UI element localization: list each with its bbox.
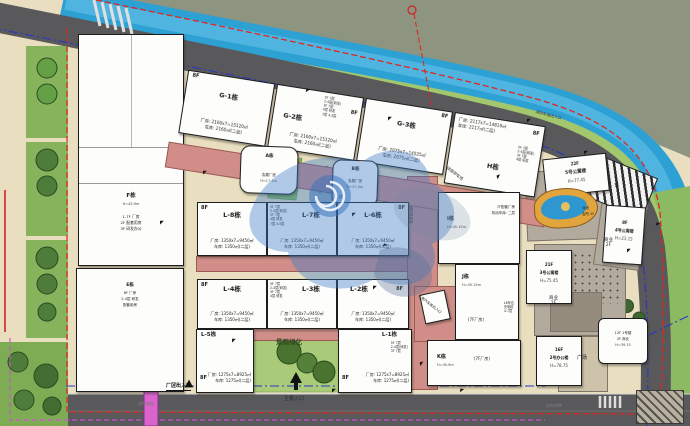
podium-strip-1 bbox=[196, 256, 408, 272]
shrub-marker-icon: ◤ bbox=[584, 150, 588, 156]
area-line: 车库: 1275㎡(二层) bbox=[373, 379, 409, 384]
west-green-2 bbox=[26, 142, 68, 236]
floors-tag: 8F bbox=[532, 131, 540, 138]
floors-tag: 8F bbox=[350, 111, 358, 118]
shrub-marker-icon: ◤ bbox=[527, 118, 531, 124]
building-b: B栋 会展厂房 H=17.3m 2F bbox=[331, 159, 379, 207]
landscape-label: 景观绿化 bbox=[276, 339, 302, 346]
building-f-note: 3F 研发办公 bbox=[79, 227, 183, 231]
building-e-name: E栋 bbox=[77, 283, 183, 288]
building-e-note: 配套用房 bbox=[77, 303, 183, 307]
floors-tag: 8F bbox=[200, 376, 207, 382]
main-entrance-arrow-icon bbox=[290, 372, 302, 383]
west-green-3 bbox=[26, 240, 68, 338]
area-line: 车库: 1350㎡(二层) bbox=[198, 318, 266, 323]
building-l5: L-5栋 8F 厂房: 1275x7=8925㎡ 车库: 1275㎡(二层) bbox=[196, 329, 254, 393]
building-k: K栋 H=45.9m (7F厂房) bbox=[427, 340, 521, 386]
apartment-4-tag: 1F bbox=[614, 184, 619, 189]
micro-notes: 5F 7层 2-4层(研发) 3F 7层 4层 研发 7层 4.5层 bbox=[322, 95, 342, 118]
building-b-height: H=17.3m bbox=[333, 184, 377, 190]
building-k-tag: (7F厂房) bbox=[474, 357, 490, 362]
main-entrance-arrow-icon bbox=[294, 383, 298, 390]
building-1: 12F 1号楼 2F 商业 H=39.15 bbox=[598, 318, 648, 364]
gate-marker bbox=[144, 388, 158, 426]
floors-tag: 8F bbox=[398, 206, 405, 212]
crosswalk bbox=[600, 396, 620, 408]
building-b-use: 会展厂房 bbox=[333, 178, 377, 184]
building-h: 厂房: 2117x7=14819㎡ 车库: 2117㎡(二层) 8F 5F 7层… bbox=[444, 112, 546, 198]
plaza-label: 广场 bbox=[577, 356, 587, 362]
floors-tag: 8F bbox=[201, 206, 208, 212]
building-j-tag: (7F厂房) bbox=[468, 318, 484, 323]
micro-notes: 5F 7层 2-4层(研发) 3F 7层 4层 研发 bbox=[516, 145, 536, 164]
west-green-1 bbox=[26, 46, 68, 138]
shrub-marker-icon: ◤ bbox=[352, 212, 356, 218]
building-b-name: B栋 bbox=[333, 166, 377, 173]
shrub-marker-icon: ◤ bbox=[388, 116, 392, 122]
area-line: 车库: 1350㎡(二层) bbox=[338, 318, 408, 323]
bridge-stripes bbox=[94, 0, 132, 34]
signal-marker bbox=[408, 6, 416, 14]
building-g1: 8F G-1栋 厂房: 2160x7=15120㎡ 车库: 2160㎡(二层) bbox=[178, 70, 275, 147]
micro-notes: 5F 7层 2-4层(研发) 3F 7层 bbox=[391, 341, 408, 353]
area-line: 车库: 1275㎡(二层) bbox=[215, 379, 251, 384]
shrub-marker-icon: ◤ bbox=[655, 222, 661, 229]
building-f-note: 2F 配套用房 bbox=[79, 221, 183, 225]
micro-notes: L6车位 充电桩 4-7层 bbox=[504, 301, 514, 313]
south-road bbox=[0, 394, 690, 426]
building-i-note: 机动车库: 二层 bbox=[492, 211, 515, 215]
building-f-note: 1-7F 厂房 bbox=[79, 215, 183, 219]
building-a-height: H=17.3m bbox=[241, 178, 297, 184]
shrub-marker-icon: ◤ bbox=[373, 285, 377, 291]
shrub-marker-icon: ◤ bbox=[460, 388, 465, 395]
floors-tag: 8F bbox=[441, 114, 449, 121]
office-2: 16F 2号办公楼 H=78.75 bbox=[536, 336, 582, 386]
club-label: 会所 2F bbox=[582, 212, 594, 216]
shrub-marker-icon: ◤ bbox=[627, 248, 631, 254]
building-g1-name: G-1栋 bbox=[185, 87, 271, 108]
building-a: A栋 会展厂房 H=17.3m bbox=[239, 145, 299, 195]
building-j: J栋 H=45.15m L6车位 充电桩 4-7层 (7F厂房) bbox=[455, 264, 519, 340]
apartment-4: 8F 4号公寓楼 H=23.15 bbox=[602, 205, 646, 266]
building-a-name: A栋 bbox=[241, 153, 297, 160]
building-l4: 8F L-4栋 厂房: 1350x7=9450㎡ 车库: 1350㎡(二层) bbox=[197, 279, 267, 329]
building-g3-name: G-3栋 bbox=[363, 115, 449, 136]
building-l6: L-6栋 8F 厂房: 1350x7=9450㎡ 车库: 1350㎡(二层) bbox=[337, 202, 409, 256]
shrub-marker-icon: ◤ bbox=[160, 220, 164, 226]
building-e-note: 8F 厂房 bbox=[77, 291, 183, 295]
area-line: 车库: 1350㎡(二层) bbox=[198, 245, 266, 250]
planned-road-label: 规划道路 bbox=[546, 404, 562, 409]
building-e-note: 2-4层 研发 bbox=[77, 297, 183, 301]
building-i: I栋 H=45.15m 7F配套厂房 机动车库: 二层 bbox=[438, 192, 520, 264]
planned-road-label: 规划道路 bbox=[138, 402, 154, 407]
site-plan: F栋 H=45.9m 1-7F 厂房 2F 配套用房 3F 研发办公 E栋 8F… bbox=[0, 0, 690, 426]
area-line: 车库: 1350㎡(二层) bbox=[338, 245, 408, 250]
building-g2-name: G-2栋 bbox=[283, 112, 303, 122]
shrub-marker-icon: ◤ bbox=[203, 170, 207, 176]
building-i-note: 7F配套厂房 bbox=[497, 205, 515, 209]
micro-notes: 5F 7层 2-4层(研发) 3F 7层 4层 研发 7层 4.5层 bbox=[270, 205, 287, 226]
building-b-floor-tag: 2F bbox=[338, 196, 343, 201]
shrub-marker-icon: ◤ bbox=[332, 388, 336, 394]
area-line: 车库: 1350㎡(二层) bbox=[268, 318, 336, 323]
micro-notes: 5F 7层 2-4层(研发) 3F 7层 4层 研发 bbox=[270, 282, 287, 299]
shrub-marker-icon: ◤ bbox=[232, 338, 236, 344]
building-a-use: 会展厂房 bbox=[241, 172, 297, 178]
floors-tag: 8F bbox=[342, 376, 349, 382]
southwest-green bbox=[0, 342, 68, 426]
building-e: E栋 8F 厂房 2-4层 研发 配套用房 2F bbox=[76, 268, 184, 392]
building-l3: 5F 7层 2-4层(研发) 3F 7层 4层 研发 L-3栋 厂房: 1350… bbox=[267, 279, 337, 329]
main-gate-label: 主要入口 bbox=[284, 397, 304, 403]
factory-entrance-arrow-icon bbox=[185, 380, 193, 388]
building-l8: 8F L-8栋 厂房: 1350x7=9450㎡ 车库: 1350㎡(二层) bbox=[197, 202, 267, 256]
building-l7: 5F 7层 2-4层(研发) 3F 7层 4层 研发 7层 4.5层 L-7栋 … bbox=[267, 202, 337, 256]
retail-label: 商业 2F bbox=[604, 238, 613, 248]
pool-label: 泳池 bbox=[582, 206, 589, 210]
fire-access-label: 消防登高面 bbox=[409, 206, 413, 224]
floors-tag: 8F bbox=[396, 287, 403, 293]
retail-label: 商业 2F bbox=[549, 296, 558, 306]
utility-block bbox=[636, 390, 684, 424]
area-line: 车库: 1350㎡(二层) bbox=[268, 245, 336, 250]
floors-tag: 8F bbox=[192, 73, 200, 80]
building-l1: L-1栋 5F 7层 2-4层(研发) 3F 7层 8F 厂房: 1275x7=… bbox=[338, 329, 412, 393]
